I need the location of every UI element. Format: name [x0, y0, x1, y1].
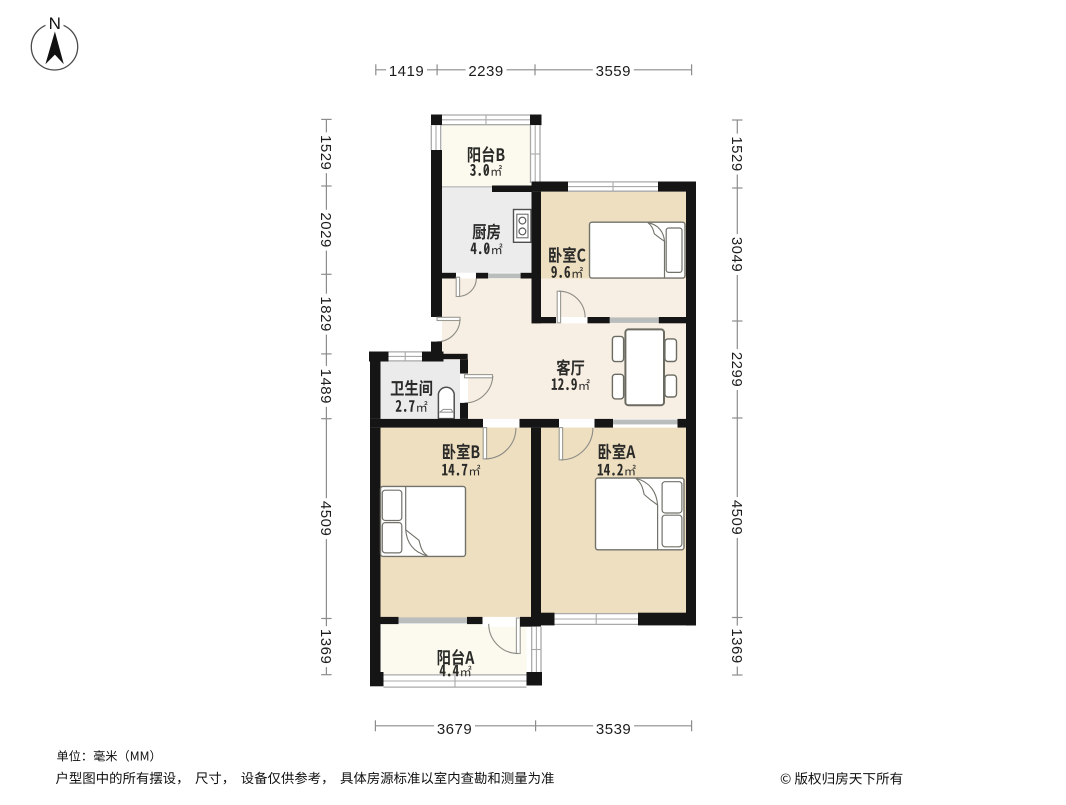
- svg-text:4509: 4509: [728, 500, 745, 535]
- svg-text:1369: 1369: [317, 629, 334, 664]
- svg-text:1829: 1829: [317, 296, 334, 331]
- svg-text:2299: 2299: [728, 352, 745, 387]
- svg-text:2239: 2239: [468, 63, 503, 80]
- svg-text:4509: 4509: [317, 501, 334, 536]
- svg-text:1489: 1489: [317, 369, 334, 404]
- svg-text:3679: 3679: [437, 721, 472, 738]
- svg-text:3559: 3559: [596, 63, 631, 80]
- svg-text:1529: 1529: [728, 136, 745, 171]
- svg-text:1419: 1419: [389, 63, 424, 80]
- svg-text:1529: 1529: [317, 135, 334, 170]
- svg-text:2029: 2029: [317, 212, 334, 247]
- svg-text:1369: 1369: [728, 628, 745, 663]
- svg-text:3049: 3049: [728, 237, 745, 272]
- svg-text:3539: 3539: [596, 721, 631, 738]
- svg-text:N: N: [49, 14, 61, 33]
